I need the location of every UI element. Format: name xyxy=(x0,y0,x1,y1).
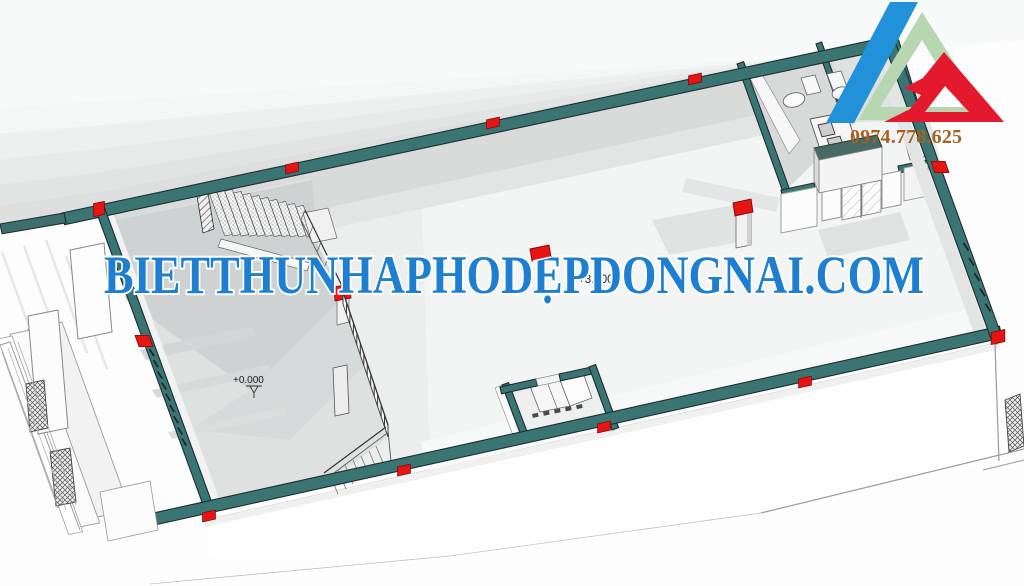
svg-text:BIETTHUNHAPHODẸPDONGNAI.COM: BIETTHUNHAPHODẸPDONGNAI.COM xyxy=(104,245,924,305)
svg-text:0974.778.625: 0974.778.625 xyxy=(850,126,962,148)
svg-text:+0.000: +0.000 xyxy=(233,375,264,386)
